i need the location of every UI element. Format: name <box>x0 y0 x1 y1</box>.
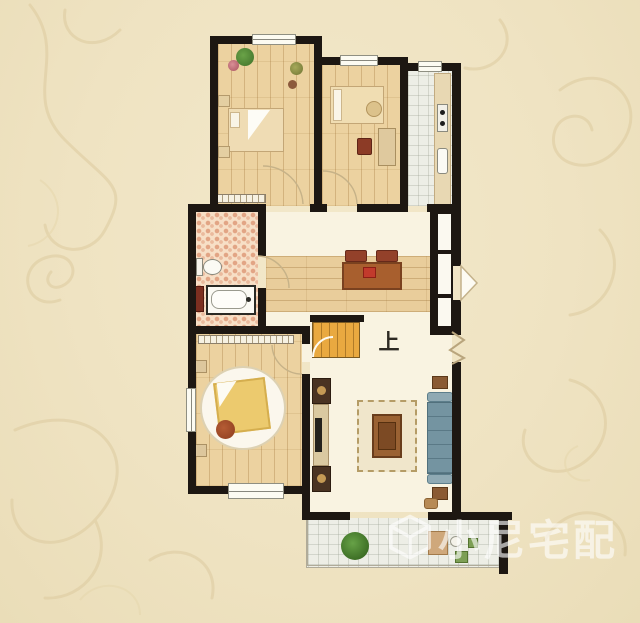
entry-cabinet-panel <box>436 252 453 296</box>
kitchen-counter <box>434 73 451 205</box>
wall-segment <box>210 36 256 44</box>
entry-cabinet-panel <box>436 296 453 328</box>
wall-segment <box>452 204 461 266</box>
window <box>340 55 378 66</box>
wall-segment <box>302 512 350 520</box>
bed-blanket-fold <box>248 110 270 140</box>
coffee-table-top <box>378 422 396 450</box>
balcony-chair <box>450 536 462 547</box>
wall-segment <box>282 486 310 494</box>
wardrobe <box>216 194 266 203</box>
decor-item <box>288 80 297 89</box>
wall-segment <box>302 374 310 520</box>
sofa <box>427 402 453 474</box>
nightstand <box>218 146 230 158</box>
drain-icon <box>246 297 251 302</box>
balcony-table <box>428 531 448 555</box>
table-centerpiece <box>363 267 376 278</box>
entry-cabinet-panel <box>436 212 453 252</box>
sofa-armrest <box>427 392 453 402</box>
stove <box>437 104 448 132</box>
wall-segment <box>188 204 196 334</box>
nightstand <box>218 95 230 107</box>
dining-chair <box>376 250 398 262</box>
entry-door-swing-icon <box>461 266 477 300</box>
wall-segment <box>310 315 364 322</box>
stairs <box>312 322 360 358</box>
speaker-cone-icon <box>317 474 326 483</box>
pillow <box>333 89 342 121</box>
pillow <box>230 112 240 128</box>
floorplan-image: 上 <box>0 0 640 623</box>
bed-pillow <box>216 420 235 439</box>
burner-icon <box>440 110 445 115</box>
pouf <box>424 498 438 509</box>
toilet <box>203 259 222 275</box>
speaker-cone-icon <box>317 386 326 395</box>
balcony-stool <box>468 538 478 548</box>
wardrobe <box>198 335 294 344</box>
round-cushion <box>366 101 382 117</box>
wall-segment <box>210 36 218 212</box>
balcony-stool <box>455 551 468 563</box>
wall-segment <box>452 63 461 213</box>
window <box>252 34 296 45</box>
window <box>186 388 196 432</box>
wall-segment <box>188 204 263 212</box>
dining-chair <box>345 250 367 262</box>
dresser <box>378 128 396 166</box>
bathtub-basin <box>211 290 247 309</box>
window <box>418 61 442 72</box>
balcony-door-zigzag <box>450 332 464 364</box>
wall-segment <box>258 204 266 256</box>
wall-segment <box>400 57 408 212</box>
tv <box>315 418 322 452</box>
wall-segment <box>376 57 402 65</box>
wall-segment <box>188 486 230 494</box>
wall-segment <box>452 362 461 520</box>
wall-segment <box>357 204 400 212</box>
wall-segment <box>322 57 342 65</box>
chair <box>357 138 372 155</box>
sofa-armrest <box>427 474 453 484</box>
plant-icon <box>290 62 303 75</box>
side-table <box>432 376 448 389</box>
plant-icon <box>341 532 369 560</box>
wall-segment <box>430 328 461 335</box>
stairs-up-label: 上 <box>374 329 404 355</box>
quilt-fold <box>217 381 240 407</box>
burner-icon <box>440 121 445 126</box>
wall-segment <box>314 36 322 212</box>
wall-segment <box>499 512 508 574</box>
wall-segment <box>302 326 310 344</box>
flower-icon <box>228 60 239 71</box>
sink <box>437 148 448 174</box>
toilet-tank <box>196 258 203 276</box>
wall-segment <box>310 204 327 212</box>
wall-segment <box>188 326 310 334</box>
bay-window <box>228 483 284 499</box>
